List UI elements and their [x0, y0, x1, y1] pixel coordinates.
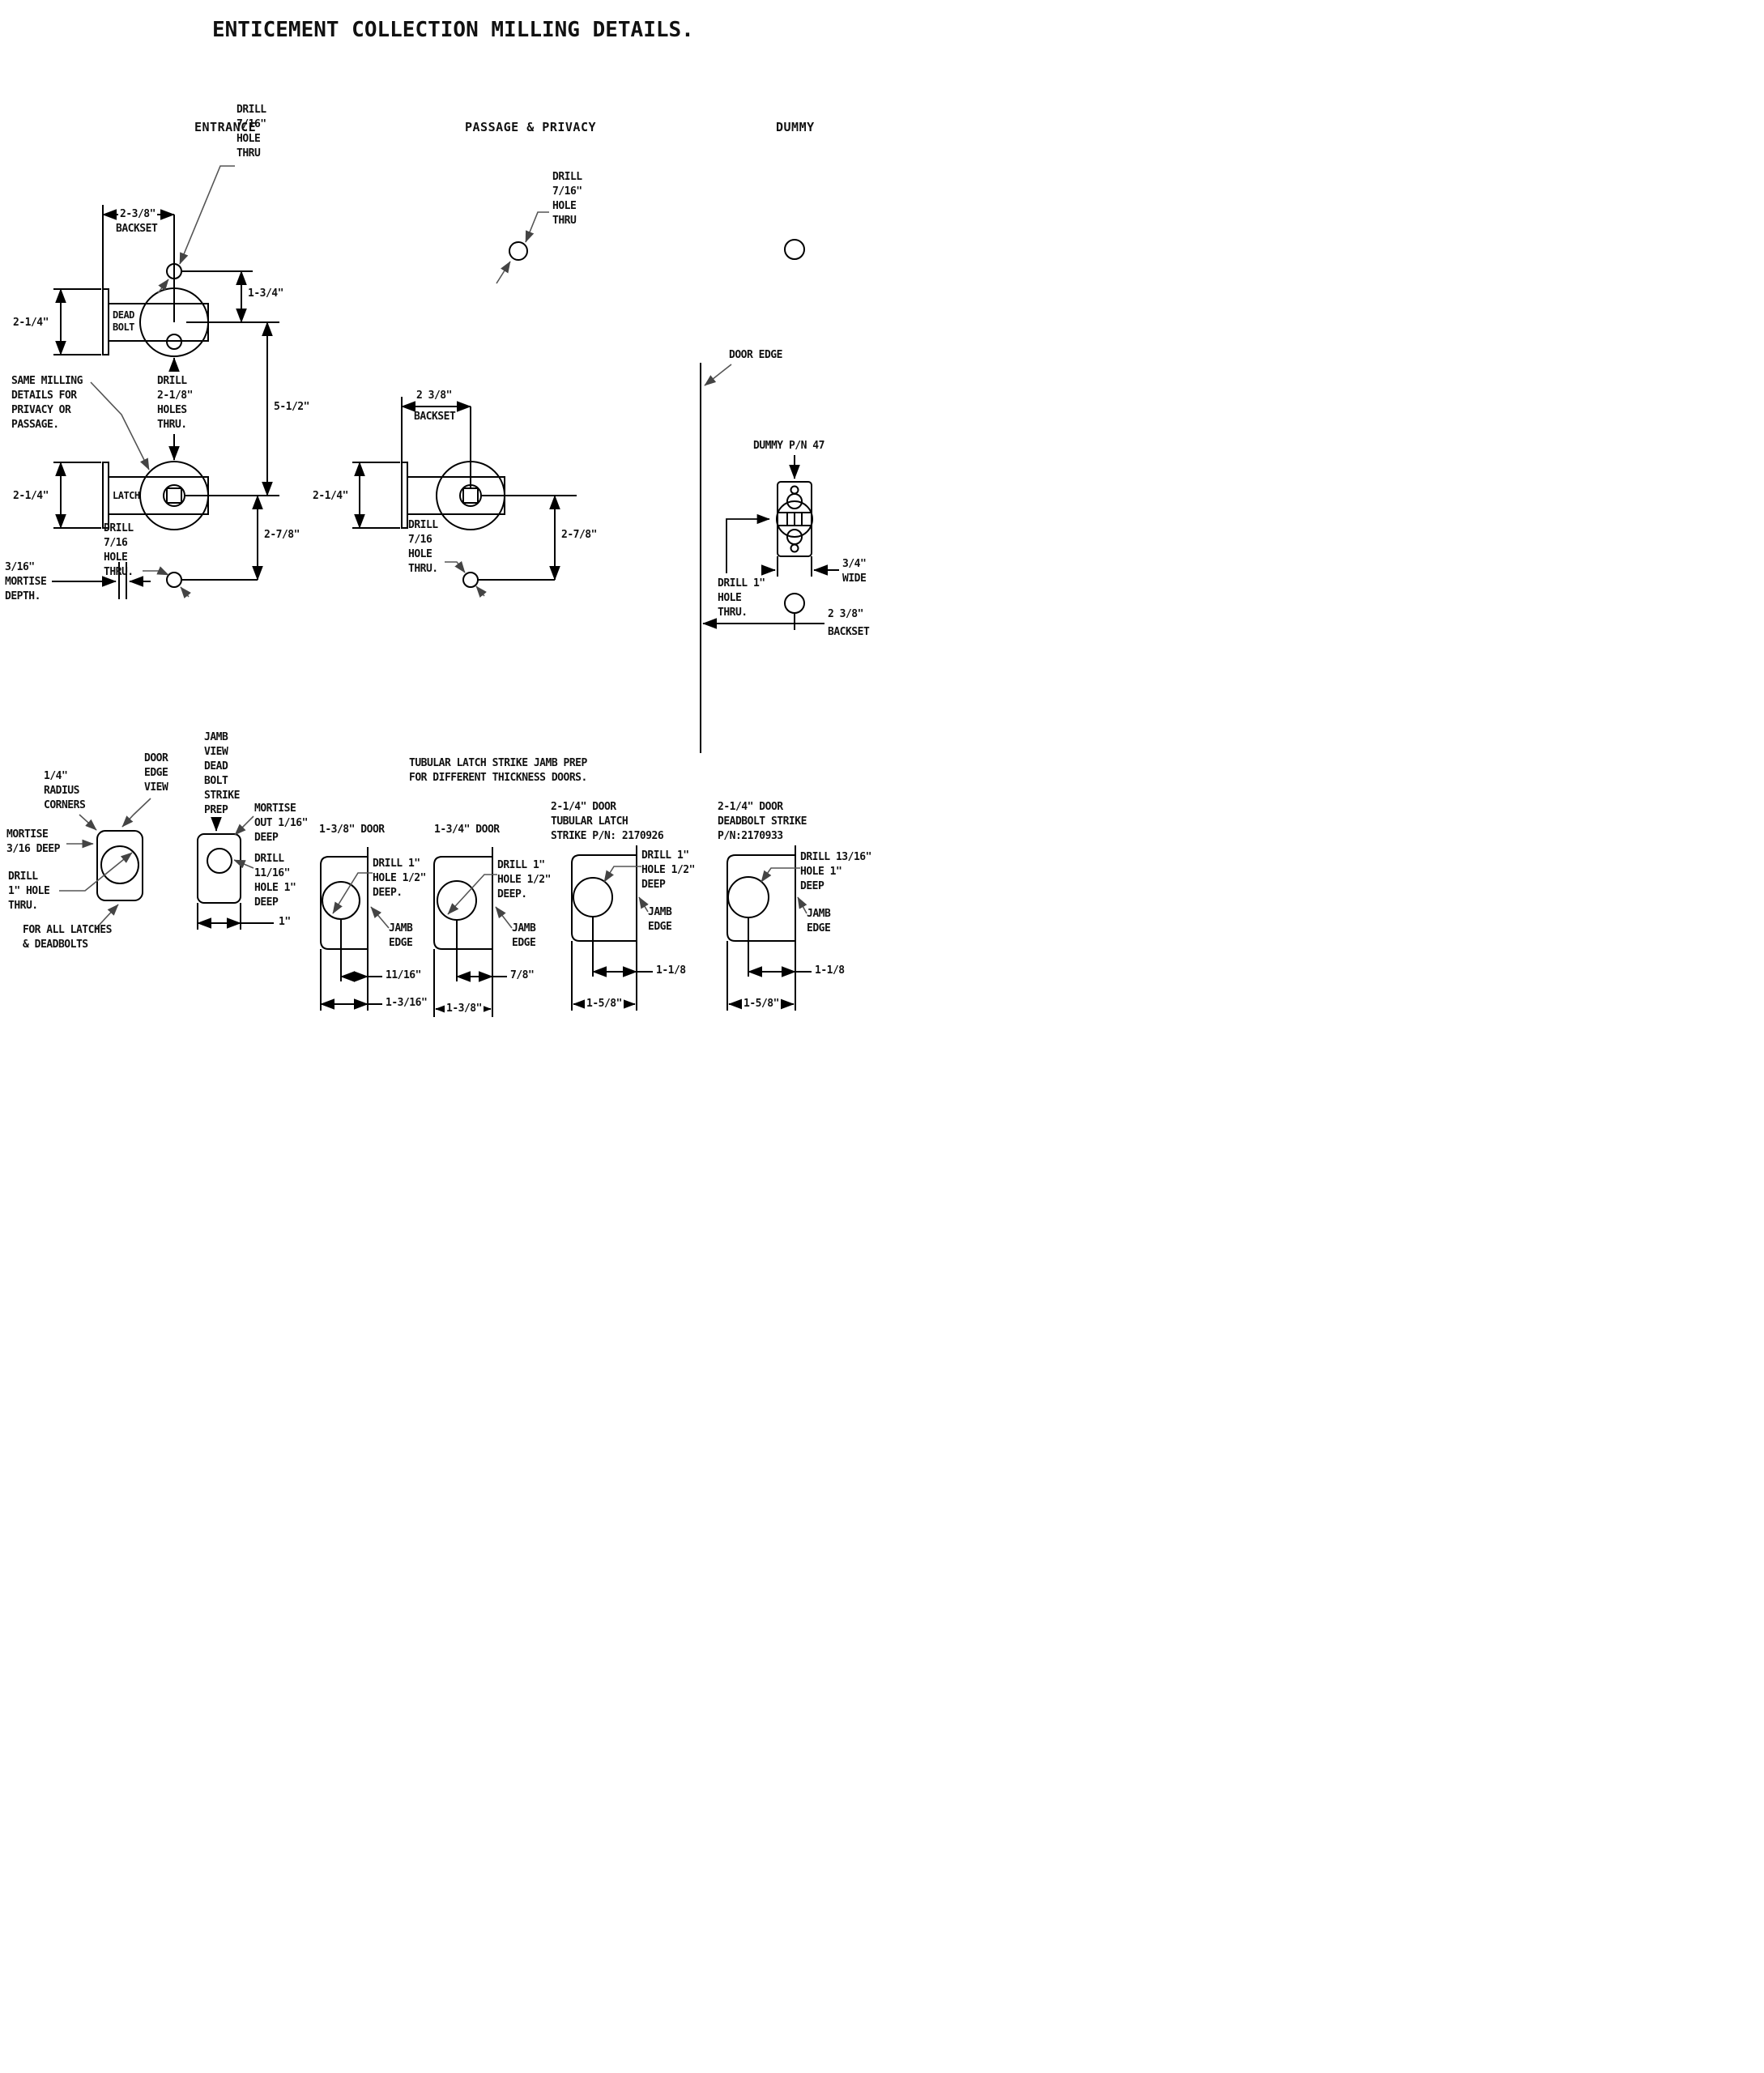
passage-latch-spindle: [463, 488, 478, 503]
dummy-pn: DUMMY P/N 47: [753, 439, 824, 453]
dummy-drill-1: DRILL 1" HOLE THRU.: [718, 577, 765, 620]
passage-backset-value: 2 3/8": [416, 389, 452, 403]
entrance-dim-214-deadbolt: 2-1/4": [13, 316, 49, 330]
door-edge-view-leaders: [59, 798, 151, 929]
door-134-drill: DRILL 1" HOLE 1/2" DEEP.: [497, 858, 551, 902]
door-edge-view-mortise: MORTISE 3/16 DEEP: [6, 828, 60, 857]
jamb-view-title: JAMB VIEW DEAD BOLT STRIKE PREP: [204, 730, 240, 818]
door-edge-view-figure: [97, 831, 143, 900]
entrance-dim-512: 5-1/2": [274, 400, 309, 415]
entrance-latch-label: LATCH: [113, 490, 140, 502]
entrance-drill-218: DRILL 2-1/8" HOLES THRU.: [157, 374, 193, 432]
entrance-deadbolt-plate: [103, 289, 109, 355]
door-134-jamb-edge: JAMB EDGE: [512, 922, 535, 951]
jamb-view-drill: DRILL 11/16" HOLE 1" DEEP: [254, 852, 296, 910]
door-edge-view-radius: 1/4" RADIUS CORNERS: [44, 769, 85, 813]
entrance-backset-label: BACKSET: [116, 222, 157, 236]
door-138-title: 1-3/8" DOOR: [319, 823, 385, 837]
door-134-hole: [437, 881, 476, 920]
dummy-figure: [701, 240, 839, 753]
door-214-latch-dim-total: 1-5/8": [585, 997, 624, 1011]
door-214-deadbolt-jamb-edge: JAMB EDGE: [807, 907, 830, 936]
dummy-top-hole: [785, 240, 804, 259]
door-214-latch-title: 2-1/4" DOOR TUBULAR LATCH STRIKE P/N: 21…: [551, 800, 663, 844]
dummy-width: 3/4" WIDE: [842, 557, 866, 586]
door-214-deadbolt-dim-center: 1-1/8: [815, 964, 845, 978]
dummy-door-edge: DOOR EDGE: [729, 348, 782, 363]
door-edge-view-outline: [97, 831, 143, 900]
passage-drill-716-top: DRILL 7/16" HOLE THRU: [552, 170, 582, 228]
passage-drill-716-bottom: DRILL 7/16 HOLE THRU.: [408, 518, 438, 577]
entrance-backset-value: 2-3/8": [118, 207, 157, 222]
door-214-latch-jamb-edge: JAMB EDGE: [648, 905, 671, 934]
passage-heading: PASSAGE & PRIVACY: [465, 120, 596, 134]
entrance-deadbolt-label: DEAD BOLT: [113, 309, 134, 334]
door-134-dim-total: 1-3/8": [445, 1002, 484, 1016]
entrance-latch-spindle: [167, 488, 181, 503]
passage-backset-label: BACKSET: [414, 410, 455, 424]
door-edge-view-hole: [101, 846, 138, 883]
dummy-leaders: [705, 364, 731, 385]
door-138-dim-total: 1-3/16": [386, 996, 427, 1011]
door-214-deadbolt-hole: [728, 877, 769, 917]
page-title: ENTICEMENT COLLECTION MILLING DETAILS.: [212, 18, 694, 42]
entrance-dim-134: 1-3/4": [248, 287, 283, 301]
dummy-heading: DUMMY: [776, 120, 815, 134]
door-214-latch-hole: [573, 878, 612, 917]
door-214-latch-dim-center: 1-1/8: [656, 964, 686, 978]
entrance-dim-278: 2-7/8": [264, 528, 300, 543]
drawing-linework: [0, 0, 882, 1036]
entrance-latch-plate: [103, 462, 109, 528]
jamb-view-hole: [207, 849, 232, 873]
door-edge-view-drill: DRILL 1" HOLE THRU.: [8, 870, 49, 913]
dummy-backset-label: BACKSET: [828, 625, 869, 640]
entrance-drill-716-top: DRILL 7/16" HOLE THRU: [236, 103, 266, 161]
passage-leaders: [445, 212, 549, 596]
door-134-title: 1-3/4" DOOR: [434, 823, 500, 837]
door-138-drill: DRILL 1" HOLE 1/2" DEEP.: [373, 857, 426, 900]
strike-prep-heading: TUBULAR LATCH STRIKE JAMB PREP FOR DIFFE…: [409, 756, 587, 785]
door-214-deadbolt-dim-total: 1-5/8": [742, 997, 781, 1011]
passage-dim-278: 2-7/8": [561, 528, 597, 543]
passage-716-hole-top: [509, 242, 527, 260]
door-134-outline: [434, 857, 492, 949]
entrance-drill-716-bottom: DRILL 7/16 HOLE THRU.: [104, 521, 134, 580]
door-214-deadbolt-title: 2-1/4" DOOR DEADBOLT STRIKE P/N:2170933: [718, 800, 807, 844]
door-138-jamb-edge: JAMB EDGE: [389, 922, 412, 951]
entrance-same-milling-note: SAME MILLING DETAILS FOR PRIVACY OR PASS…: [11, 374, 83, 432]
passage-figure: [352, 242, 577, 587]
dummy-backset-value: 2 3/8": [828, 607, 863, 622]
door-134-figure: [434, 847, 507, 1017]
passage-716-hole-bottom: [463, 573, 478, 587]
door-214-deadbolt-drill: DRILL 13/16" HOLE 1" DEEP: [800, 850, 871, 894]
milling-details-drawing: ENTICEMENT COLLECTION MILLING DETAILS. E…: [0, 0, 882, 1036]
dummy-backset-hole: [785, 594, 804, 613]
door-edge-view-title: DOOR EDGE VIEW: [144, 751, 168, 795]
entrance-mortise-depth: 3/16" MORTISE DEPTH.: [5, 560, 46, 604]
passage-dim-214: 2-1/4": [313, 489, 348, 504]
jamb-view-leaders: [234, 816, 254, 868]
door-214-latch-drill: DRILL 1" HOLE 1/2" DEEP: [641, 849, 695, 892]
door-138-outline: [321, 857, 368, 949]
door-214-latch-outline: [572, 855, 637, 941]
entrance-716-hole-bottom: [167, 573, 181, 587]
jamb-view-width: 1": [279, 915, 291, 930]
entrance-dim-214-latch: 2-1/4": [13, 489, 49, 504]
jamb-view-mortise: MORTISE OUT 1/16" DEEP: [254, 802, 308, 845]
door-134-dim-center: 7/8": [510, 968, 534, 983]
jamb-view-outline: [198, 834, 241, 903]
door-138-dim-center: 11/16": [386, 968, 421, 983]
passage-latch-plate: [402, 462, 407, 528]
door-edge-view-for-all: FOR ALL LATCHES & DEADBOLTS: [23, 923, 112, 952]
